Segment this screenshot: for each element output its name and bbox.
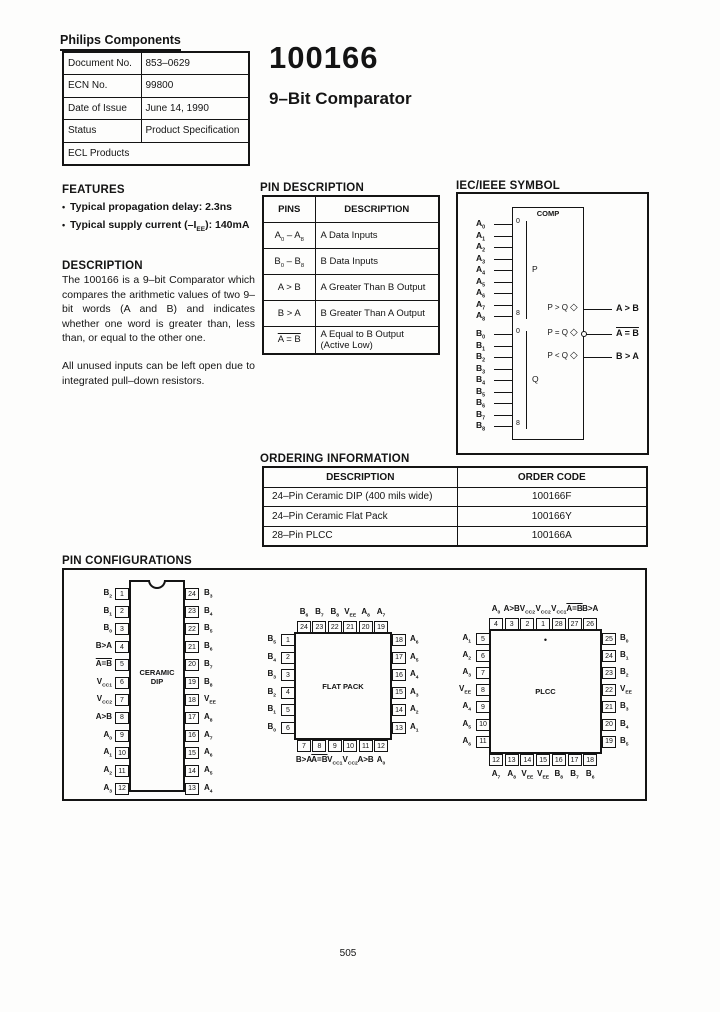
pin-label-flatpack-15: A3: [410, 687, 419, 697]
pin-label-dip-11: A2: [72, 765, 112, 775]
input-line: [494, 392, 512, 393]
dip-pin-4: 4: [115, 641, 129, 653]
input-line: [494, 316, 512, 317]
pin-description-table: PINS DESCRIPTION A0 – A8A Data InputsB0 …: [262, 195, 440, 355]
pin-description-body: A0 – A8A Data InputsB0 – B8B Data Inputs…: [263, 222, 439, 354]
pin-label-dip-19: B8: [204, 677, 213, 687]
dip-pin-8: 8: [115, 712, 129, 724]
pin-description-col-desc: DESCRIPTION: [315, 196, 439, 222]
doc-info-value: 99800: [141, 75, 249, 98]
flatpack-pin-18: 18: [392, 634, 406, 646]
doc-info-footer: ECL Products: [63, 142, 249, 165]
doc-info-footer-row: ECL Products: [63, 142, 249, 165]
pin-description-row: A0 – A8A Data Inputs: [263, 222, 439, 248]
pin-label-flatpack-5: B1: [238, 704, 276, 714]
dip-pin-12: 12: [115, 783, 129, 795]
dip-pin-21: 21: [185, 641, 199, 653]
pin-name-cell: A = B: [263, 326, 315, 354]
p-operand-label: P: [532, 264, 538, 274]
doc-info-value: Product Specification: [141, 120, 249, 143]
comparator-box: [512, 207, 584, 440]
brand-header: Philips Components: [60, 33, 181, 51]
pin-label-flatpack-23: B7: [315, 607, 324, 617]
pin-desc-cell: A Data Inputs: [315, 222, 439, 248]
pin-label-plcc-7: A3: [433, 667, 471, 677]
b-group-bracket: [526, 331, 527, 429]
input-line: [494, 305, 512, 306]
dip-pin-16: 16: [185, 730, 199, 742]
iec-inner-condition: P = Q: [536, 328, 568, 337]
ordering-header-row: DESCRIPTION ORDER CODE: [263, 467, 647, 487]
feature-item: •Typical supply current (–IEE): 140mA: [62, 219, 257, 231]
flatpack-pin-3: 3: [281, 669, 295, 681]
input-line: [494, 357, 512, 358]
order-description-cell: 24–Pin Ceramic DIP (400 mils wide): [263, 487, 457, 507]
dip-pin-18: 18: [185, 694, 199, 706]
flatpack-pin-19: 19: [374, 621, 388, 633]
pin-label-plcc-16: B8: [555, 769, 564, 779]
datasheet-page: Philips Components Document No.853–0629E…: [0, 0, 720, 1012]
inversion-bubble-icon: [581, 331, 587, 337]
pin-configurations-box: CERAMIC DIP FLAT PACK • PLCC 1B22B13B04B…: [62, 568, 647, 801]
order-code-cell: 100166Y: [457, 507, 647, 527]
pin-label-flatpack-7: B>A: [296, 755, 312, 764]
input-line: [494, 293, 512, 294]
iec-output-label: B > A: [616, 351, 639, 361]
pin-description-row: A > BA Greater Than B Output: [263, 274, 439, 300]
pin-name-cell: A0 – A8: [263, 222, 315, 248]
pin-label-plcc-10: A5: [433, 719, 471, 729]
iec-symbol-diagram: COMP 0 8 0 8 P Q A0A1A2A3A4A5A6A7A8B0B1B…: [456, 192, 649, 455]
part-subtitle: 9–Bit Comparator: [269, 89, 412, 109]
doc-info-label: Date of Issue: [63, 97, 141, 120]
bullet-icon: •: [62, 220, 65, 230]
plcc-pin-13: 13: [505, 754, 519, 766]
pin-label-dip-9: A0: [72, 730, 112, 740]
flatpack-pin-20: 20: [359, 621, 373, 633]
pin-label-plcc-5: A1: [433, 633, 471, 643]
pin-label-dip-21: B6: [204, 641, 213, 651]
plcc-pin-5: 5: [476, 633, 490, 645]
input-line: [494, 334, 512, 335]
pin-desc-cell: B Greater Than A Output: [315, 300, 439, 326]
bullet-icon: •: [62, 202, 65, 212]
flatpack-package-name: FLAT PACK: [296, 682, 390, 691]
pin-label-plcc-6: A2: [433, 650, 471, 660]
output-line: [584, 309, 612, 310]
pin-label-flatpack-24: B6: [300, 607, 309, 617]
flatpack-pin-11: 11: [359, 740, 373, 752]
pin-label-dip-4: B>A: [72, 641, 112, 650]
a-group-bottom-marker: 8: [516, 310, 520, 317]
plcc-pin-12: 12: [489, 754, 503, 766]
pin-description-header-row: PINS DESCRIPTION: [263, 196, 439, 222]
plcc-pin-24: 24: [602, 650, 616, 662]
pin-name-cell: B0 – B8: [263, 248, 315, 274]
q-operand-label: Q: [532, 374, 539, 384]
pin-label-flatpack-21: VEE: [344, 607, 356, 617]
doc-info-table-body: Document No.853–0629ECN No.99800Date of …: [63, 52, 249, 165]
flatpack-pin-21: 21: [343, 621, 357, 633]
pin-label-flatpack-16: A4: [410, 669, 419, 679]
pin-label-plcc-8: VEE: [433, 684, 471, 694]
input-line: [494, 259, 512, 260]
plcc-pin-25: 25: [602, 633, 616, 645]
iec-input-b3: B3: [476, 363, 485, 373]
pin-label-dip-22: B5: [204, 623, 213, 633]
pin1-indicator-icon: •: [544, 635, 547, 645]
input-line: [494, 415, 512, 416]
pin-label-flatpack-4: B2: [238, 687, 276, 697]
pin-desc-cell: A Greater Than B Output: [315, 274, 439, 300]
pin-label-plcc-25: B0: [620, 633, 629, 643]
pin-label-dip-14: A5: [204, 765, 213, 775]
dip-pin-15: 15: [185, 747, 199, 759]
pin-label-flatpack-14: A2: [410, 704, 419, 714]
pin-label-dip-13: A4: [204, 783, 213, 793]
dip-pin-9: 9: [115, 730, 129, 742]
pin-label-flatpack-9: VCC1: [327, 755, 342, 765]
pin-label-dip-2: B1: [72, 606, 112, 616]
flatpack-pin-13: 13: [392, 722, 406, 734]
flatpack-pin-1: 1: [281, 634, 295, 646]
pin-label-plcc-27: A=B: [566, 604, 582, 613]
iec-input-a6: A6: [476, 287, 485, 297]
iec-input-a7: A7: [476, 299, 485, 309]
plcc-pin-18: 18: [583, 754, 597, 766]
dip-package-name: CERAMIC DIP: [131, 668, 183, 686]
plcc-pin-2: 2: [520, 618, 534, 630]
order-description-cell: 24–Pin Ceramic Flat Pack: [263, 507, 457, 527]
ordering-table: DESCRIPTION ORDER CODE 24–Pin Ceramic DI…: [262, 466, 648, 547]
pin-label-dip-15: A6: [204, 747, 213, 757]
flatpack-pin-8: 8: [312, 740, 326, 752]
pin-description-row: B > AB Greater Than A Output: [263, 300, 439, 326]
pin-label-flatpack-20: A8: [361, 607, 370, 617]
flatpack-pin-24: 24: [297, 621, 311, 633]
pin-description-row: A = BA Equal to B Output (Active Low): [263, 326, 439, 354]
polarity-indicator-icon: ◇: [570, 350, 578, 362]
pin-label-flatpack-13: A1: [410, 722, 419, 732]
pin-description-heading: PIN DESCRIPTION: [260, 182, 364, 194]
pin-label-plcc-26: B>A: [582, 604, 598, 613]
b-group-bottom-marker: 8: [516, 420, 520, 427]
plcc-pin-1: 1: [536, 618, 550, 630]
pin-label-flatpack-12: A0: [377, 755, 386, 765]
polarity-indicator-icon: ◇: [570, 302, 578, 314]
features-heading: FEATURES: [62, 184, 125, 196]
ordering-col-code: ORDER CODE: [457, 467, 647, 487]
flatpack-pin-15: 15: [392, 687, 406, 699]
dip-pin-14: 14: [185, 765, 199, 777]
dip-pin-24: 24: [185, 588, 199, 600]
flatpack-pin-12: 12: [374, 740, 388, 752]
features-list: •Typical propagation delay: 2.3ns•Typica…: [62, 201, 257, 237]
doc-info-label: ECN No.: [63, 75, 141, 98]
iec-output-label: A = B: [616, 328, 639, 338]
pin-label-flatpack-10: VCC2: [343, 755, 358, 765]
ordering-row: 28–Pin PLCC100166A: [263, 526, 647, 546]
description-paragraph: All unused inputs can be left open due t…: [62, 359, 255, 388]
pin-label-dip-23: B4: [204, 606, 213, 616]
flatpack-pin-2: 2: [281, 652, 295, 664]
flatpack-pin-6: 6: [281, 722, 295, 734]
pin-label-plcc-24: B1: [620, 650, 629, 660]
plcc-pin-21: 21: [602, 701, 616, 713]
iec-inner-condition: P < Q: [536, 351, 568, 360]
polarity-indicator-icon: ◇: [570, 327, 578, 339]
pin-label-flatpack-19: A7: [377, 607, 386, 617]
pin-label-plcc-4: A0: [492, 604, 501, 614]
pin-name-cell: B > A: [263, 300, 315, 326]
pin-label-flatpack-3: B3: [238, 669, 276, 679]
dip-pin-5: 5: [115, 659, 129, 671]
flatpack-pin-23: 23: [312, 621, 326, 633]
plcc-pin-6: 6: [476, 650, 490, 662]
a-group-bracket: [526, 221, 527, 319]
pin-label-plcc-20: B4: [620, 719, 629, 729]
pin-label-flatpack-11: A>B: [357, 755, 373, 764]
plcc-pin-27: 27: [568, 618, 582, 630]
pin-label-flatpack-22: B8: [331, 607, 340, 617]
iec-input-a3: A3: [476, 253, 485, 263]
pin-label-flatpack-8: A=B: [311, 755, 327, 764]
order-code-cell: 100166A: [457, 526, 647, 546]
pin-label-dip-17: A8: [204, 712, 213, 722]
ordering-body: 24–Pin Ceramic DIP (400 mils wide)100166…: [263, 487, 647, 546]
plcc-pin-3: 3: [505, 618, 519, 630]
pin-label-plcc-15: VEE: [537, 769, 549, 779]
doc-info-label: Document No.: [63, 52, 141, 75]
pin-label-plcc-11: A6: [433, 736, 471, 746]
plcc-pin-17: 17: [568, 754, 582, 766]
doc-info-value: June 14, 1990: [141, 97, 249, 120]
flatpack-pin-14: 14: [392, 704, 406, 716]
doc-info-row: Date of IssueJune 14, 1990: [63, 97, 249, 120]
doc-info-value: 853–0629: [141, 52, 249, 75]
dip-pin-22: 22: [185, 623, 199, 635]
pin-label-plcc-13: A8: [507, 769, 516, 779]
iec-input-b4: B4: [476, 374, 485, 384]
pin-label-dip-12: A3: [72, 783, 112, 793]
iec-input-b5: B5: [476, 386, 485, 396]
description-heading: DESCRIPTION: [62, 260, 143, 272]
pin-label-dip-6: VCC1: [72, 677, 112, 687]
input-line: [494, 236, 512, 237]
input-line: [494, 247, 512, 248]
flatpack-pin-5: 5: [281, 704, 295, 716]
iec-input-b2: B2: [476, 351, 485, 361]
pin-label-plcc-3: A>B: [504, 604, 520, 613]
input-line: [494, 224, 512, 225]
input-line: [494, 403, 512, 404]
dip-package-body: CERAMIC DIP: [129, 580, 185, 792]
iec-input-b8: B8: [476, 420, 485, 430]
pin-label-plcc-17: B7: [570, 769, 579, 779]
pin-label-plcc-22: VEE: [620, 684, 632, 694]
pin-description-row: B0 – B8B Data Inputs: [263, 248, 439, 274]
iec-output-label: A > B: [616, 303, 639, 313]
part-number: 100166: [269, 40, 378, 76]
pin-label-dip-7: VCC2: [72, 694, 112, 704]
plcc-pin-15: 15: [536, 754, 550, 766]
pin-desc-cell: B Data Inputs: [315, 248, 439, 274]
pin-label-dip-5: A=B: [72, 659, 112, 668]
ordering-row: 24–Pin Ceramic DIP (400 mils wide)100166…: [263, 487, 647, 507]
dip-pin-13: 13: [185, 783, 199, 795]
plcc-pin-28: 28: [552, 618, 566, 630]
iec-inner-condition: P > Q: [536, 303, 568, 312]
ordering-row: 24–Pin Ceramic Flat Pack100166Y: [263, 507, 647, 527]
dip-pin-19: 19: [185, 677, 199, 689]
a-group-top-marker: 0: [516, 218, 520, 225]
pin-label-plcc-2: VCC2: [520, 604, 535, 614]
plcc-pin-8: 8: [476, 684, 490, 696]
pin-label-flatpack-18: A6: [410, 634, 419, 644]
iec-input-b6: B6: [476, 397, 485, 407]
pin-label-dip-10: A1: [72, 747, 112, 757]
pin-label-dip-3: B0: [72, 623, 112, 633]
plcc-package-body: • PLCC: [489, 629, 602, 754]
flatpack-package-body: FLAT PACK: [294, 632, 392, 740]
dip-pin-20: 20: [185, 659, 199, 671]
doc-info-row: Document No.853–0629: [63, 52, 249, 75]
dip-pin-23: 23: [185, 606, 199, 618]
flatpack-pin-17: 17: [392, 652, 406, 664]
dip-pin-6: 6: [115, 677, 129, 689]
flatpack-pin-10: 10: [343, 740, 357, 752]
pin-label-dip-1: B2: [72, 588, 112, 598]
dip-pin-3: 3: [115, 623, 129, 635]
pin-description-col-pins: PINS: [263, 196, 315, 222]
input-line: [494, 270, 512, 271]
dip-pin-11: 11: [115, 765, 129, 777]
page-number: 505: [0, 948, 696, 959]
ordering-heading: ORDERING INFORMATION: [260, 453, 409, 465]
description-paragraph: The 100166 is a 9–bit Comparator which c…: [62, 273, 255, 346]
doc-info-row: ECN No.99800: [63, 75, 249, 98]
plcc-pin-16: 16: [552, 754, 566, 766]
pin-label-plcc-19: B5: [620, 736, 629, 746]
input-line: [494, 380, 512, 381]
order-code-cell: 100166F: [457, 487, 647, 507]
pin-label-plcc-14: VEE: [521, 769, 533, 779]
plcc-pin-11: 11: [476, 736, 490, 748]
pin-label-plcc-23: B2: [620, 667, 629, 677]
description-paragraphs: The 100166 is a 9–bit Comparator which c…: [62, 273, 255, 401]
output-line: [584, 334, 612, 335]
pin-label-plcc-1: VCC2: [535, 604, 550, 614]
comp-label: COMP: [512, 209, 584, 218]
dip-pin-2: 2: [115, 606, 129, 618]
dip-pin-10: 10: [115, 747, 129, 759]
plcc-pin-4: 4: [489, 618, 503, 630]
plcc-package-name: PLCC: [491, 687, 600, 696]
pin-label-flatpack-6: B0: [238, 722, 276, 732]
order-description-cell: 28–Pin PLCC: [263, 526, 457, 546]
plcc-pin-9: 9: [476, 701, 490, 713]
pin-label-dip-8: A>B: [72, 712, 112, 721]
pin-desc-cell: A Equal to B Output (Active Low): [315, 326, 439, 354]
iec-input-b1: B1: [476, 340, 485, 350]
iec-input-b0: B0: [476, 328, 485, 338]
dip-pin-17: 17: [185, 712, 199, 724]
plcc-pin-22: 22: [602, 684, 616, 696]
plcc-pin-10: 10: [476, 719, 490, 731]
pin-label-dip-16: A7: [204, 730, 213, 740]
input-line: [494, 282, 512, 283]
pin-label-plcc-9: A4: [433, 701, 471, 711]
iec-input-a5: A5: [476, 276, 485, 286]
flatpack-pin-4: 4: [281, 687, 295, 699]
pin-label-plcc-28: VCC1: [551, 604, 566, 614]
plcc-pin-7: 7: [476, 667, 490, 679]
flatpack-pin-9: 9: [328, 740, 342, 752]
pin-label-plcc-12: A7: [492, 769, 501, 779]
doc-info-label: Status: [63, 120, 141, 143]
pin-configurations-heading: PIN CONFIGURATIONS: [62, 555, 192, 567]
flatpack-pin-7: 7: [297, 740, 311, 752]
flatpack-pin-16: 16: [392, 669, 406, 681]
pin-label-dip-20: B7: [204, 659, 213, 669]
plcc-pin-23: 23: [602, 667, 616, 679]
doc-info-table: Document No.853–0629ECN No.99800Date of …: [62, 51, 250, 166]
b-group-top-marker: 0: [516, 328, 520, 335]
iec-input-b7: B7: [476, 409, 485, 419]
pin-label-flatpack-1: B5: [238, 634, 276, 644]
iec-input-a2: A2: [476, 241, 485, 251]
plcc-pin-26: 26: [583, 618, 597, 630]
pin-label-flatpack-2: B4: [238, 652, 276, 662]
input-line: [494, 346, 512, 347]
pin-label-dip-24: B3: [204, 588, 213, 598]
flatpack-pin-22: 22: [328, 621, 342, 633]
dip-notch-icon: [148, 580, 166, 589]
dip-pin-7: 7: [115, 694, 129, 706]
pin-label-plcc-21: B3: [620, 701, 629, 711]
iec-input-a1: A1: [476, 230, 485, 240]
iec-input-a4: A4: [476, 264, 485, 274]
iec-input-a0: A0: [476, 218, 485, 228]
pin-label-dip-18: VEE: [204, 694, 216, 704]
pin-label-flatpack-17: A5: [410, 652, 419, 662]
iec-input-a8: A8: [476, 310, 485, 320]
doc-info-row: StatusProduct Specification: [63, 120, 249, 143]
plcc-pin-20: 20: [602, 719, 616, 731]
input-line: [494, 426, 512, 427]
ordering-col-description: DESCRIPTION: [263, 467, 457, 487]
iec-symbol-heading: IEC/IEEE SYMBOL: [456, 180, 560, 192]
dip-pin-1: 1: [115, 588, 129, 600]
pin-label-plcc-18: B6: [586, 769, 595, 779]
plcc-pin-19: 19: [602, 736, 616, 748]
feature-item: •Typical propagation delay: 2.3ns: [62, 201, 257, 213]
pin-name-cell: A > B: [263, 274, 315, 300]
output-line: [584, 357, 612, 358]
input-line: [494, 369, 512, 370]
plcc-pin-14: 14: [520, 754, 534, 766]
